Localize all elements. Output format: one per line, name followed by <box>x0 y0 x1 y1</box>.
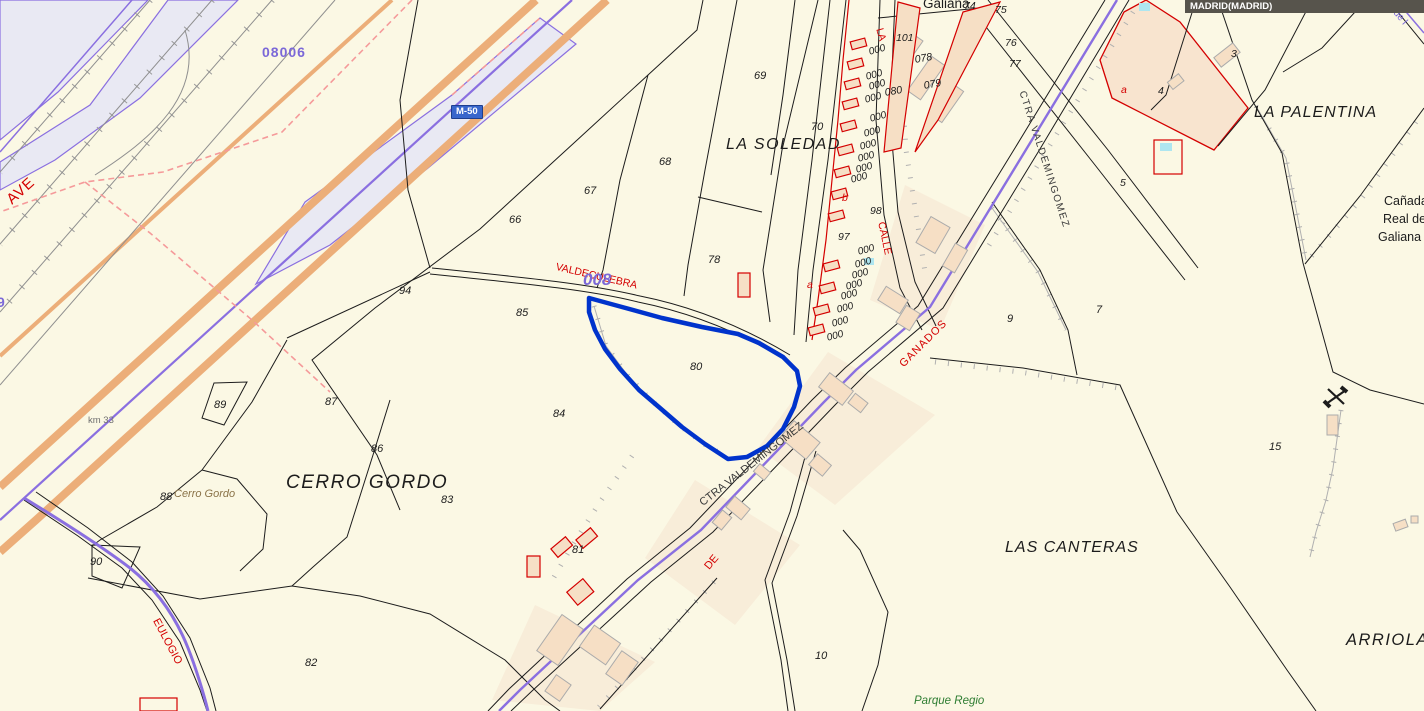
street-building-12 <box>808 324 825 336</box>
street-building-8 <box>828 210 845 222</box>
map-viewport[interactable]: GalianaLA SOLEDADLA PALENTINACERRO GORDO… <box>0 0 1424 711</box>
street-building-3 <box>842 98 859 110</box>
mine-icon <box>1324 387 1347 407</box>
red-overlays <box>140 0 1182 711</box>
buildings <box>537 3 1418 701</box>
street-building-9 <box>823 260 840 272</box>
street-building-1 <box>847 58 864 70</box>
ctra-valdemingomez-road <box>499 0 1117 711</box>
map-canvas[interactable] <box>0 0 1424 711</box>
road-badge-m50: M-50 <box>451 105 483 119</box>
street-building-7 <box>831 188 848 200</box>
municipality-bar: MADRID(MADRID) <box>1185 0 1424 13</box>
street-building-4 <box>840 120 857 132</box>
street-building-2 <box>844 78 861 90</box>
street-building-5 <box>837 144 854 156</box>
street-building-11 <box>813 304 830 316</box>
street-building-10 <box>819 282 836 294</box>
eulogio-road <box>24 498 208 711</box>
fence-lines <box>550 12 1416 707</box>
m50-motorway <box>0 0 607 552</box>
street-building-6 <box>834 166 851 178</box>
street-building-0 <box>850 38 867 50</box>
